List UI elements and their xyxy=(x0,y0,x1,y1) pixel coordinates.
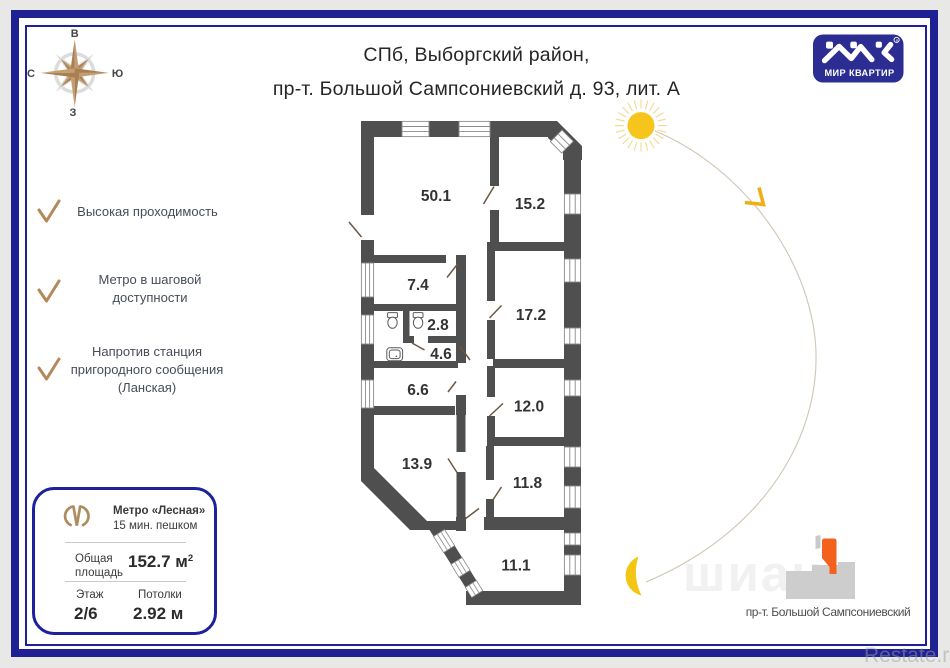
svg-text:Ю: Ю xyxy=(112,68,123,80)
svg-text:15.2: 15.2 xyxy=(515,196,545,213)
svg-text:4.6: 4.6 xyxy=(430,346,452,363)
svg-text:В: В xyxy=(71,28,79,40)
svg-text:50.1: 50.1 xyxy=(421,188,452,205)
svg-text:З: З xyxy=(70,107,77,119)
svg-text:11.8: 11.8 xyxy=(513,475,543,492)
svg-text:С: С xyxy=(27,68,35,80)
svg-text:13.9: 13.9 xyxy=(402,456,433,473)
svg-text:11.1: 11.1 xyxy=(501,558,531,575)
svg-text:6.6: 6.6 xyxy=(407,382,429,399)
svg-text:МИР КВАРТИР: МИР КВАРТИР xyxy=(824,68,894,78)
svg-text:2.8: 2.8 xyxy=(427,317,449,334)
svg-text:7.4: 7.4 xyxy=(407,277,429,294)
svg-text:12.0: 12.0 xyxy=(514,399,544,416)
svg-text:17.2: 17.2 xyxy=(516,307,546,324)
